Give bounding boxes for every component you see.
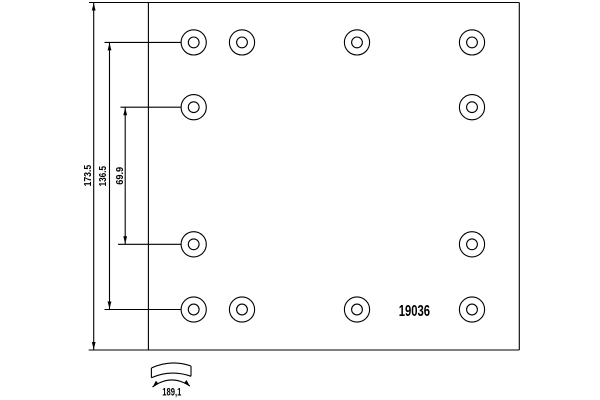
- svg-text:173.5: 173.5: [83, 164, 94, 186]
- svg-text:136.5: 136.5: [98, 166, 109, 187]
- svg-text:69.9: 69.9: [115, 166, 126, 185]
- svg-text:189,1: 189,1: [162, 387, 181, 399]
- svg-text:19036: 19036: [399, 303, 430, 320]
